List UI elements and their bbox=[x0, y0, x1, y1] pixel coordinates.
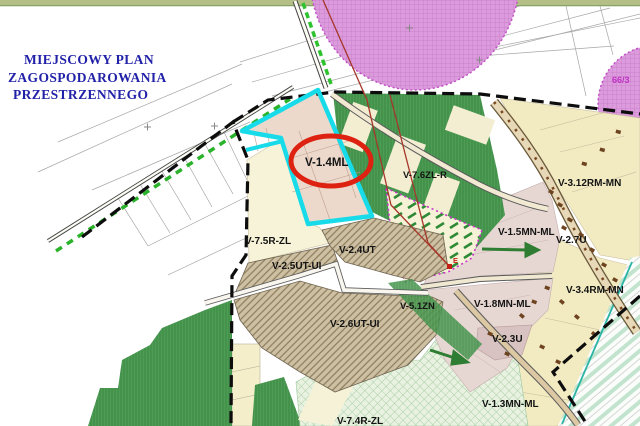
zone-label-v-3-12rm-mn: V-3.12RM-MN bbox=[558, 178, 621, 189]
zone-label-v-7-6zl-r: V-7.6ZL-R bbox=[403, 170, 447, 181]
zone-label-v-2-3u: V-2.3U bbox=[492, 334, 523, 345]
map-title: MIEJSCOWY PLAN ZAGOSPODAROWANIA PRZESTRZ… bbox=[8, 52, 167, 102]
zone-label-v-2-5ut-ui: V-2.5UT-UI bbox=[272, 261, 322, 272]
zone-label-v-2-6ut-ui: V-2.6UT-UI bbox=[330, 319, 380, 330]
zone-label-v-3-4rm-mn: V-3.4RM-MN bbox=[566, 285, 624, 296]
zoning-map-viewport: V-1.4ML V-7.6ZL-R V-3.12RM-MN V-1.5MN-ML… bbox=[0, 0, 640, 426]
zone-label-v-1-5mn-ml: V-1.5MN-ML bbox=[498, 227, 555, 238]
marker-e-label: E bbox=[453, 256, 458, 265]
title-line-2: ZAGOSPODAROWANIA bbox=[8, 70, 167, 85]
zone-label-v-5-1zn: V-5.1ZN bbox=[400, 301, 435, 312]
title-line-3: PRZESTRZENNEGO bbox=[13, 87, 148, 102]
zone-label-v-7-4r-zl: V-7.4R-ZL bbox=[337, 416, 383, 426]
zone-label-v-2-7u: V-2.7U bbox=[556, 235, 587, 246]
zone-label-v-2-4ut: V-2.4UT bbox=[339, 245, 376, 256]
zone-label-v-1-3mn-ml: V-1.3MN-ML bbox=[482, 399, 539, 410]
parcel-number-label: 66/3 bbox=[612, 75, 630, 85]
title-line-1: MIEJSCOWY PLAN bbox=[24, 52, 154, 67]
power-station-marker bbox=[447, 264, 452, 269]
zone-label-v-1-4ml: V-1.4ML bbox=[305, 157, 348, 169]
zoning-map: V-1.4ML V-7.6ZL-R V-3.12RM-MN V-1.5MN-ML… bbox=[0, 0, 640, 426]
zone-label-v-1-8mn-ml: V-1.8MN-ML bbox=[474, 299, 531, 310]
zone-label-v-7-5r-zl: V-7.5R-ZL bbox=[245, 236, 291, 247]
